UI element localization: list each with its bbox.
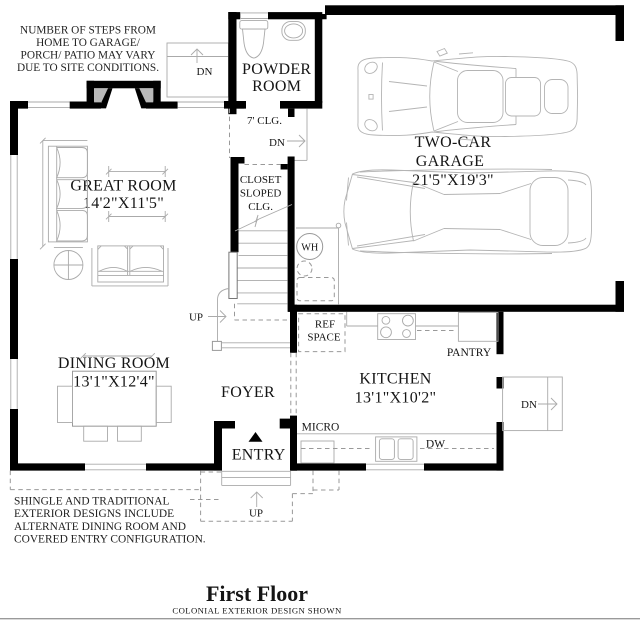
svg-text:EXTERIOR DESIGNS INCLUDE: EXTERIOR DESIGNS INCLUDE [14, 508, 174, 520]
svg-text:DN: DN [197, 66, 213, 78]
svg-text:DINING ROOM: DINING ROOM [58, 355, 170, 372]
svg-text:WH: WH [301, 243, 319, 254]
svg-text:DUE TO SITE CONDITIONS.: DUE TO SITE CONDITIONS. [17, 62, 159, 74]
svg-text:13'1"X12'4": 13'1"X12'4" [73, 374, 155, 391]
svg-text:ENTRY: ENTRY [232, 447, 286, 464]
svg-text:DN: DN [269, 137, 285, 149]
svg-text:DN: DN [521, 399, 537, 411]
svg-text:GARAGE: GARAGE [416, 153, 484, 170]
svg-text:KITCHEN: KITCHEN [359, 371, 431, 388]
svg-text:CLG.: CLG. [248, 201, 273, 213]
svg-text:GREAT ROOM: GREAT ROOM [70, 178, 176, 195]
svg-text:CLOSET: CLOSET [240, 174, 282, 186]
svg-text:PANTRY: PANTRY [447, 347, 492, 359]
svg-text:NUMBER OF STEPS FROM: NUMBER OF STEPS FROM [20, 25, 156, 37]
svg-text:MICRO: MICRO [302, 422, 340, 434]
svg-text:TWO-CAR: TWO-CAR [415, 134, 492, 151]
svg-text:13'1"X10'2": 13'1"X10'2" [355, 390, 437, 407]
svg-text:FOYER: FOYER [221, 384, 275, 401]
svg-text:DW: DW [426, 439, 445, 451]
svg-text:PORCH/ PATIO MAY VARY: PORCH/ PATIO MAY VARY [21, 50, 156, 62]
svg-text:SLOPED: SLOPED [240, 188, 282, 200]
svg-text:14'2"X11'5": 14'2"X11'5" [83, 195, 164, 212]
svg-text:POWDER: POWDER [242, 61, 311, 78]
svg-text:UP: UP [249, 508, 263, 520]
svg-text:ROOM: ROOM [252, 78, 301, 95]
svg-text:SPACE: SPACE [307, 332, 341, 344]
svg-text:HOME TO GARAGE/: HOME TO GARAGE/ [36, 37, 141, 49]
svg-text:UP: UP [189, 312, 203, 324]
svg-text:COLONIAL EXTERIOR DESIGN SHOWN: COLONIAL EXTERIOR DESIGN SHOWN [172, 606, 342, 616]
svg-text:First Floor: First Floor [206, 581, 308, 606]
svg-text:ALTERNATE DINING ROOM AND: ALTERNATE DINING ROOM AND [14, 521, 186, 533]
svg-text:7' CLG.: 7' CLG. [247, 115, 282, 127]
svg-text:COVERED ENTRY CONFIGURATION.: COVERED ENTRY CONFIGURATION. [14, 534, 206, 546]
svg-text:SHINGLE AND TRADITIONAL: SHINGLE AND TRADITIONAL [14, 496, 169, 508]
svg-text:REF: REF [315, 319, 335, 331]
